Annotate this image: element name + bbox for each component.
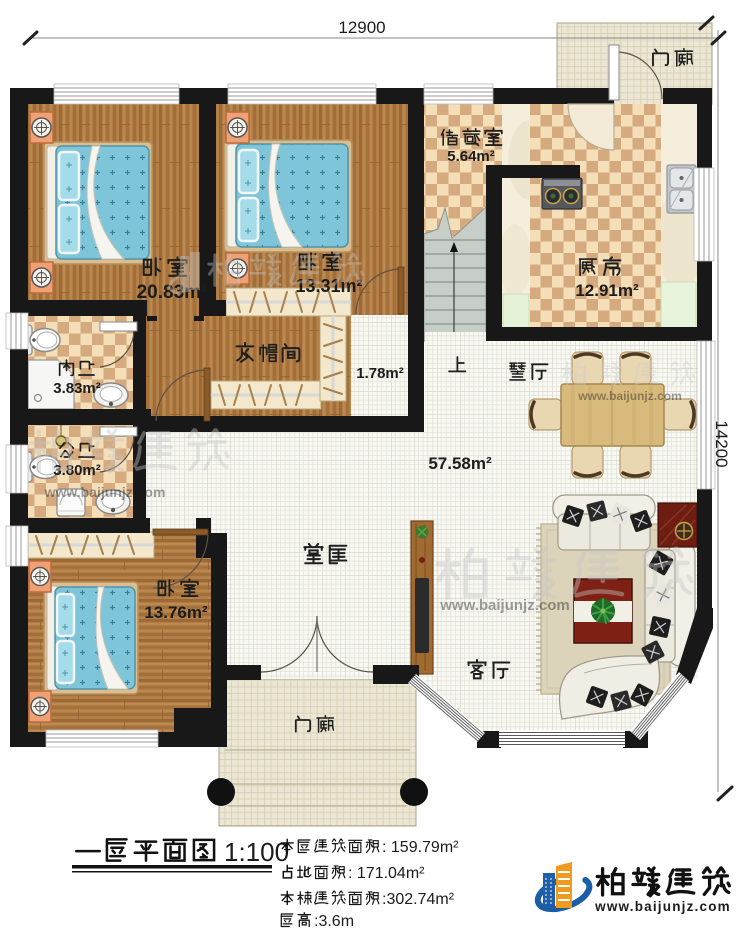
svg-text::302.74m²: :302.74m²: [382, 891, 455, 908]
svg-text:1.78m²: 1.78m²: [356, 365, 404, 382]
svg-text::3.6m: :3.6m: [314, 913, 354, 930]
svg-text:57.58m²: 57.58m²: [428, 454, 492, 473]
svg-text:3.83m²: 3.83m²: [53, 380, 101, 397]
svg-text:www.baijunjz.com: www.baijunjz.com: [594, 899, 731, 914]
svg-text:14200: 14200: [712, 420, 731, 467]
svg-text:13.76m²: 13.76m²: [144, 603, 208, 622]
svg-text:12.91m²: 12.91m²: [575, 281, 639, 300]
svg-text:1:100: 1:100: [224, 837, 289, 867]
svg-text:5.64m²: 5.64m²: [447, 148, 495, 165]
svg-text:www.baijunjz.com: www.baijunjz.com: [577, 389, 682, 403]
svg-text:: 171.04m²: : 171.04m²: [348, 865, 425, 882]
svg-text:www.baijunjz.com: www.baijunjz.com: [44, 484, 166, 500]
svg-text:: 159.79m²: : 159.79m²: [382, 839, 459, 856]
svg-text:13.31m²: 13.31m²: [295, 276, 362, 296]
svg-text:www.baijunjz.com: www.baijunjz.com: [439, 597, 569, 614]
svg-text:12900: 12900: [338, 18, 385, 37]
